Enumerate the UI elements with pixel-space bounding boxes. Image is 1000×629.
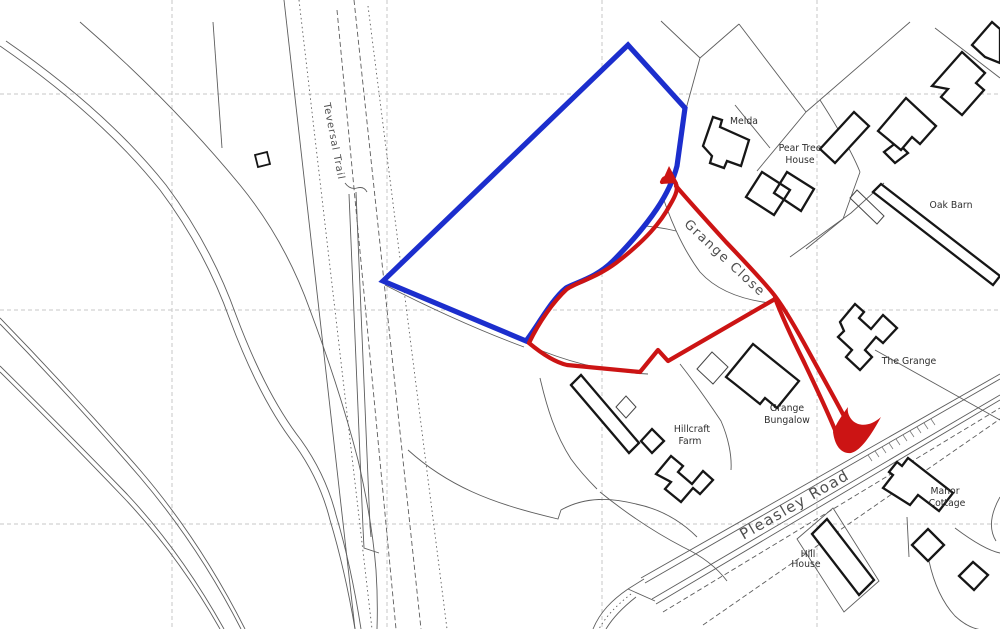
site-boundary-outline xyxy=(383,45,685,341)
place-label-manor-cottage-2: Cottage xyxy=(929,498,966,509)
building-shed xyxy=(255,152,270,167)
place-label-manor-cottage: Manor xyxy=(930,486,959,497)
road-label-teversal-trail: Teversal Trail xyxy=(320,101,346,181)
place-label-hillcraft-2: Farm xyxy=(679,436,702,447)
place-label-melda: Melda xyxy=(730,116,758,127)
place-label-hillcraft: Hillcraft xyxy=(674,424,710,435)
road-label-grange-close: Grange Close xyxy=(681,217,768,300)
building-hillcraft-barn xyxy=(571,375,639,453)
place-label-pear-tree-2: House xyxy=(785,155,814,166)
place-label-oak-barn: Oak Barn xyxy=(930,200,973,211)
building-bottom-right xyxy=(959,562,988,590)
building-hillcraft-farmhouse xyxy=(656,456,713,502)
place-label-the-grange: The Grange xyxy=(881,356,937,367)
building-grange-bungalow xyxy=(726,344,799,408)
building-pear-tree-house xyxy=(746,172,814,215)
place-label-pear-tree: Pear Tree xyxy=(779,143,822,154)
map-canvas: Teversal Trail Grange Close Pleasley Roa… xyxy=(0,0,1000,629)
building-top-right-3 xyxy=(878,98,936,150)
road-hatching xyxy=(868,419,935,461)
place-label-hill-house-2: House xyxy=(791,559,820,570)
site-location-plan: Teversal Trail Grange Close Pleasley Roa… xyxy=(0,0,1000,629)
building-manor-cottage-outbuilding xyxy=(912,529,944,561)
building-hillcraft-store xyxy=(641,429,664,453)
building-top-right-4 xyxy=(932,52,985,115)
place-label-grange-bungalow: Grange xyxy=(770,403,805,414)
building-top-right-corner xyxy=(972,22,1000,63)
place-label-grange-bungalow-2: Bungalow xyxy=(764,415,810,426)
building-top-right-1 xyxy=(820,112,869,163)
building-hill-house xyxy=(812,519,874,595)
building-grange-bungalow-outbuilding xyxy=(697,352,728,384)
building-hillcraft-outbuilding xyxy=(616,396,636,418)
